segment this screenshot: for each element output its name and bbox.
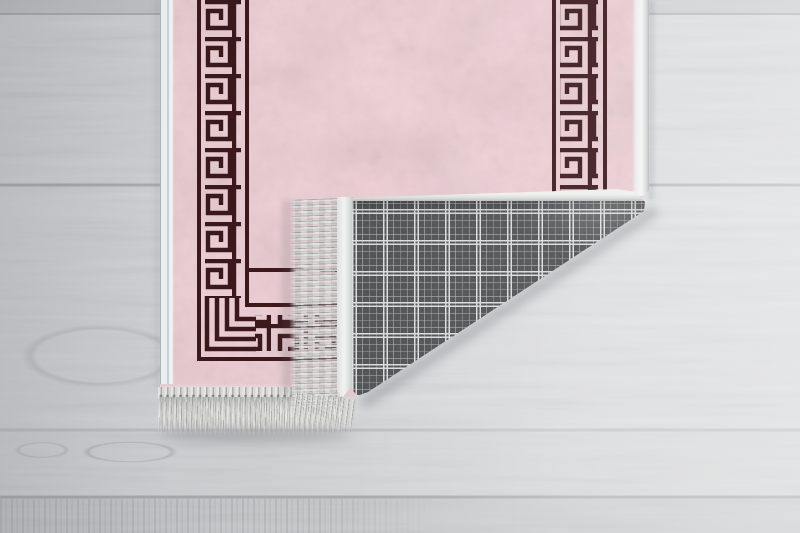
right-band	[552, 0, 607, 200]
product-photo	[0, 0, 800, 533]
rug-binding-right	[632, 0, 649, 196]
rug-binding-left	[160, 0, 174, 397]
folded-fringe-band	[289, 198, 338, 408]
folded-fringe-droop	[291, 392, 357, 435]
fold-binding-left	[337, 197, 353, 397]
